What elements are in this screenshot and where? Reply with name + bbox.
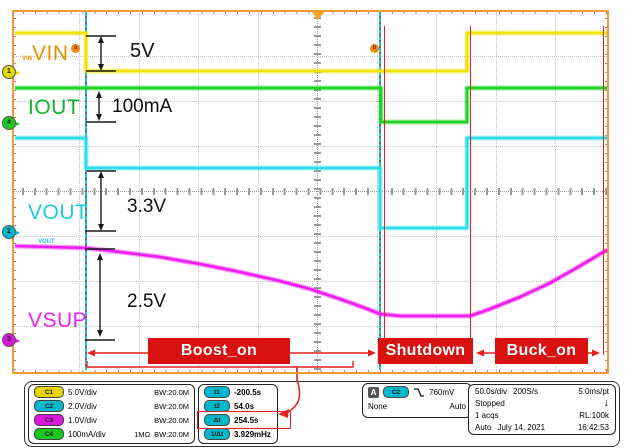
- boost-on-text: Boost_on: [181, 342, 257, 360]
- delta-t-highlight-frame: [197, 411, 291, 429]
- waveform-traces: [12, 10, 609, 374]
- ch1-settings-row: C1 5.0V/div BW:20.0M: [29, 385, 194, 399]
- inv-delta-t-row: 1/Δt 3.929mHz: [199, 427, 277, 441]
- trigger-source-badge[interactable]: C2: [383, 386, 409, 398]
- ch4-marker-number: 4: [2, 116, 16, 130]
- ch2-bandwidth: BW:20.0M: [154, 402, 189, 411]
- time-label: 16:42:53: [578, 423, 609, 432]
- ch2-badge[interactable]: C2: [34, 400, 64, 412]
- trigger-mode-row: None Auto: [363, 400, 471, 413]
- ch1-scale: 5.0V/div: [68, 388, 97, 397]
- region-boundary-line: [384, 26, 385, 355]
- sample-rate: 200S/s: [513, 387, 538, 396]
- t1-value: -200.5s: [234, 388, 261, 397]
- ch4-impedance: 1MΩ: [134, 430, 150, 439]
- record-length: RL:100k: [579, 411, 609, 420]
- ch3-settings-row: C3 1.0V/div BW:20.0M: [29, 413, 194, 427]
- ground-marker-ch2[interactable]: 2 ▸: [2, 225, 20, 239]
- cursor-t2[interactable]: [379, 12, 381, 370]
- graticule-ticks-right: [605, 10, 609, 374]
- mark-b-indicator: b: [370, 44, 379, 53]
- t2-value: 54.0s: [234, 402, 254, 411]
- measurement-2v5: 2.5V: [127, 291, 166, 313]
- ch4-badge[interactable]: C4: [34, 428, 64, 440]
- region-label-boost-on: Boost_on: [148, 338, 290, 364]
- channel-label-vsup: VSUP: [28, 309, 87, 333]
- ch2-settings-row: C2 2.0V/div BW:20.0M: [29, 399, 194, 413]
- ch1-marker-arrow-icon: ▸: [16, 68, 20, 77]
- acq-count-row: 1 acqs RL:100k: [469, 409, 615, 421]
- ground-marker-ch1[interactable]: 1 ▸: [2, 65, 20, 79]
- timebase-scale: 50.0s/div: [475, 387, 507, 396]
- shutdown-text: Shutdown: [386, 342, 466, 360]
- trigger-position-marker[interactable]: [311, 11, 325, 20]
- ch2-scale: 2.0V/div: [68, 402, 97, 411]
- trigger-panel: A C2 760mV None Auto: [362, 383, 472, 418]
- trigger-mode: None: [368, 402, 387, 411]
- channel-label-iout: IOUT: [28, 96, 80, 120]
- trigger-source-row: A C2 760mV: [363, 384, 471, 400]
- buck-on-text: Buck_on: [507, 342, 577, 360]
- oscilloscope-screen: Boost_on Shutdown Buck_on 5V 100mA 3.3V …: [0, 0, 631, 448]
- ch4-bandwidth: BW:20.0M: [154, 430, 189, 439]
- ch4-scale: 100mA/div: [68, 430, 106, 439]
- sample-resolution: 5.0ms/pt: [578, 387, 609, 396]
- ch3-scale: 1.0V/div: [68, 416, 97, 425]
- trigger-level: 760mV: [429, 388, 454, 397]
- tiny-label-vout: VOUT: [38, 239, 55, 245]
- region-label-buck-on: Buck_on: [495, 338, 588, 364]
- ch3-marker-arrow-icon: ▸: [16, 336, 20, 345]
- inv-delta-t-badge: 1/Δt: [204, 428, 230, 440]
- ch2-marker-arrow-icon: ▸: [16, 228, 20, 237]
- ch3-bandwidth: BW:20.0M: [154, 416, 189, 425]
- ch1-bandwidth: BW:20.0M: [154, 388, 189, 397]
- tiny-label-vin: VIN: [22, 56, 32, 62]
- falling-edge-icon: [413, 386, 425, 398]
- date-label: July 14, 2021: [497, 423, 545, 432]
- ch4-marker-arrow-icon: ▸: [16, 119, 20, 128]
- ch1-badge[interactable]: C1: [34, 386, 64, 398]
- ch4-settings-row: C4 100mA/div 1MΩ BW:20.0M: [29, 427, 194, 441]
- t1-row: t1 -200.5s: [199, 385, 277, 399]
- channel-label-vout: VOUT: [28, 201, 88, 225]
- t1-badge: t1: [204, 386, 230, 398]
- region-label-shutdown: Shutdown: [378, 338, 473, 364]
- mark-a-indicator: a: [71, 44, 80, 53]
- measurement-100ma: 100mA: [112, 96, 172, 118]
- ch3-marker-number: 3: [2, 333, 16, 347]
- measurement-3v3: 3.3V: [127, 196, 166, 218]
- horizontal-panel: 50.0s/div 200S/s 5.0ms/pt Stopped ↓ 1 ac…: [468, 384, 616, 435]
- acq-state-row: Stopped ↓: [469, 397, 615, 409]
- timebase-row: 50.0s/div 200S/s 5.0ms/pt: [469, 385, 615, 397]
- channel-label-vin: VIN: [32, 42, 69, 66]
- region-boundary-line: [470, 26, 471, 355]
- stopped-arrow-icon: ↓: [604, 398, 610, 408]
- graticule-border: [12, 10, 609, 374]
- graticule-ticks-bottom: [12, 370, 609, 374]
- trigger-a-badge: A: [368, 387, 379, 398]
- channel-settings-panel: C1 5.0V/div BW:20.0M C2 2.0V/div BW:20.0…: [28, 384, 195, 444]
- region-boundary-line: [603, 26, 604, 355]
- measurement-5v: 5V: [130, 40, 154, 63]
- datetime-row: Auto July 14, 2021 16:42:53: [469, 421, 615, 433]
- annotation-arrows: [12, 10, 609, 374]
- ch3-badge[interactable]: C3: [34, 414, 64, 426]
- inv-delta-t-value: 3.929mHz: [234, 430, 271, 439]
- acq-count: 1 acqs: [475, 411, 499, 420]
- ground-marker-ch3[interactable]: 3 ▸: [2, 333, 20, 347]
- trigger-status: Auto: [450, 402, 466, 411]
- ground-marker-ch4[interactable]: 4 ▸: [2, 116, 20, 130]
- waveform-graticule: Boost_on Shutdown Buck_on 5V 100mA 3.3V …: [12, 10, 609, 374]
- acq-state: Stopped: [475, 399, 505, 408]
- acq-mode: Auto: [475, 423, 491, 432]
- ch2-marker-number: 2: [2, 225, 16, 239]
- ch1-marker-number: 1: [2, 65, 16, 79]
